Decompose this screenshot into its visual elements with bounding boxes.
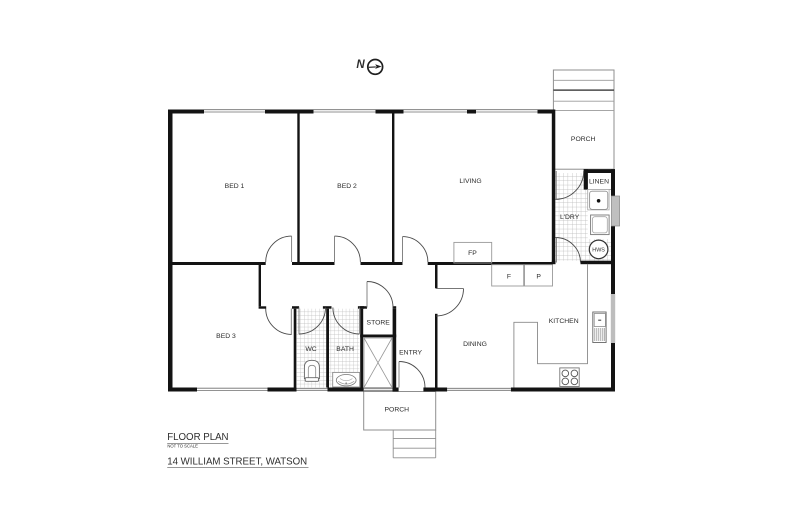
svg-text:HWS: HWS bbox=[592, 248, 605, 254]
svg-text:BED 2: BED 2 bbox=[337, 183, 357, 190]
svg-text:PORCH: PORCH bbox=[385, 406, 410, 413]
svg-text:L'DRY: L'DRY bbox=[560, 214, 580, 221]
svg-text:DINING: DINING bbox=[463, 341, 487, 348]
svg-text:PORCH: PORCH bbox=[571, 136, 596, 143]
svg-text:KITCHEN: KITCHEN bbox=[549, 318, 579, 325]
svg-text:ENTRY: ENTRY bbox=[399, 350, 422, 357]
svg-text:BED 3: BED 3 bbox=[216, 333, 236, 340]
svg-text:FP: FP bbox=[468, 250, 477, 257]
svg-text:P: P bbox=[536, 274, 541, 281]
svg-text:WC: WC bbox=[305, 346, 316, 353]
svg-text:14 WILLIAM STREET, WATSON: 14 WILLIAM STREET, WATSON bbox=[167, 456, 307, 467]
svg-text:NOT TO SCALE: NOT TO SCALE bbox=[167, 443, 198, 448]
svg-text:STORE: STORE bbox=[367, 319, 391, 326]
svg-text:BATH: BATH bbox=[336, 346, 354, 353]
svg-text:BED 1: BED 1 bbox=[225, 183, 245, 190]
svg-text:F: F bbox=[507, 274, 511, 281]
svg-text:LINEN: LINEN bbox=[589, 178, 609, 185]
svg-text:LIVING: LIVING bbox=[459, 178, 481, 185]
svg-text:FLOOR PLAN: FLOOR PLAN bbox=[167, 432, 228, 443]
svg-text:N: N bbox=[356, 59, 365, 71]
